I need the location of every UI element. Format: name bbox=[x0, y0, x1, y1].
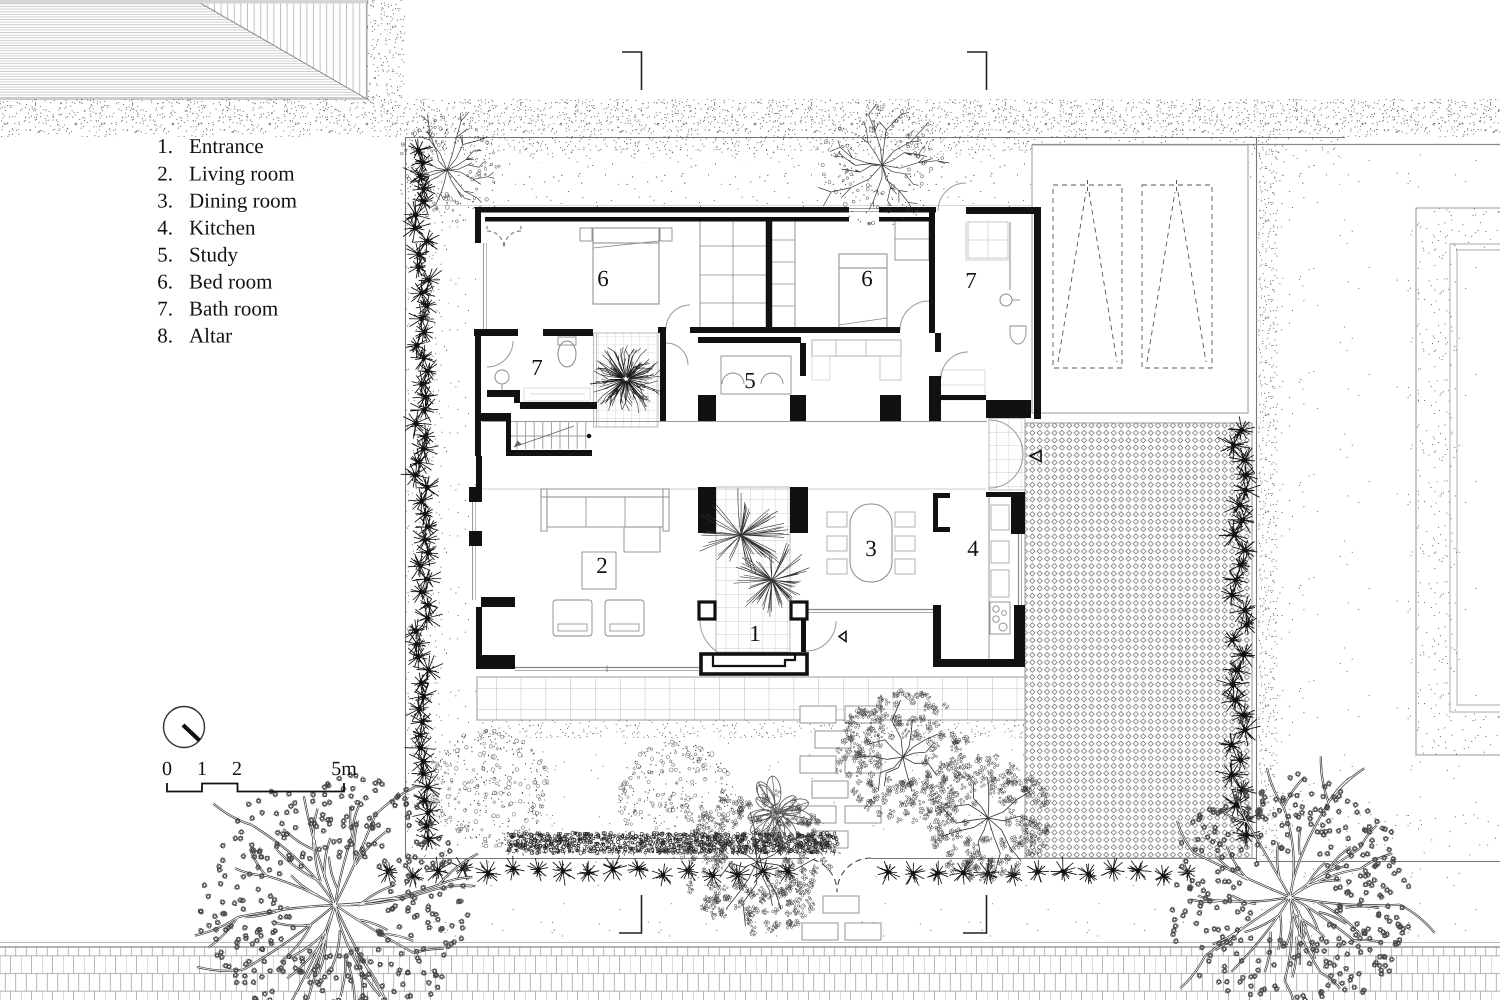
svg-text:4.: 4. bbox=[157, 215, 173, 239]
svg-text:7: 7 bbox=[965, 268, 977, 293]
svg-text:5: 5 bbox=[744, 368, 756, 393]
svg-text:Altar: Altar bbox=[189, 324, 232, 348]
svg-text:Bath room: Bath room bbox=[189, 297, 278, 321]
svg-text:1.: 1. bbox=[157, 134, 173, 158]
svg-text:3.: 3. bbox=[157, 188, 173, 212]
svg-text:3: 3 bbox=[865, 536, 877, 561]
svg-text:1: 1 bbox=[197, 758, 207, 780]
svg-text:5m: 5m bbox=[331, 758, 357, 780]
svg-text:Study: Study bbox=[189, 242, 239, 266]
svg-text:7.: 7. bbox=[157, 297, 173, 321]
svg-text:1: 1 bbox=[749, 621, 761, 646]
svg-text:6: 6 bbox=[597, 266, 609, 291]
svg-text:2: 2 bbox=[232, 758, 242, 780]
svg-text:2.: 2. bbox=[157, 161, 173, 185]
svg-text:4: 4 bbox=[967, 536, 979, 561]
svg-text:Bed room: Bed room bbox=[189, 270, 272, 294]
svg-text:5.: 5. bbox=[157, 242, 173, 266]
svg-text:0: 0 bbox=[162, 758, 172, 780]
svg-text:Entrance: Entrance bbox=[189, 134, 264, 158]
svg-text:6: 6 bbox=[861, 266, 873, 291]
svg-text:8.: 8. bbox=[157, 324, 173, 348]
svg-text:Kitchen: Kitchen bbox=[189, 215, 256, 239]
svg-text:2: 2 bbox=[596, 553, 608, 578]
svg-text:7: 7 bbox=[531, 355, 543, 380]
svg-text:Living room: Living room bbox=[189, 161, 295, 185]
svg-text:6.: 6. bbox=[157, 270, 173, 294]
svg-text:Dining room: Dining room bbox=[189, 188, 297, 212]
